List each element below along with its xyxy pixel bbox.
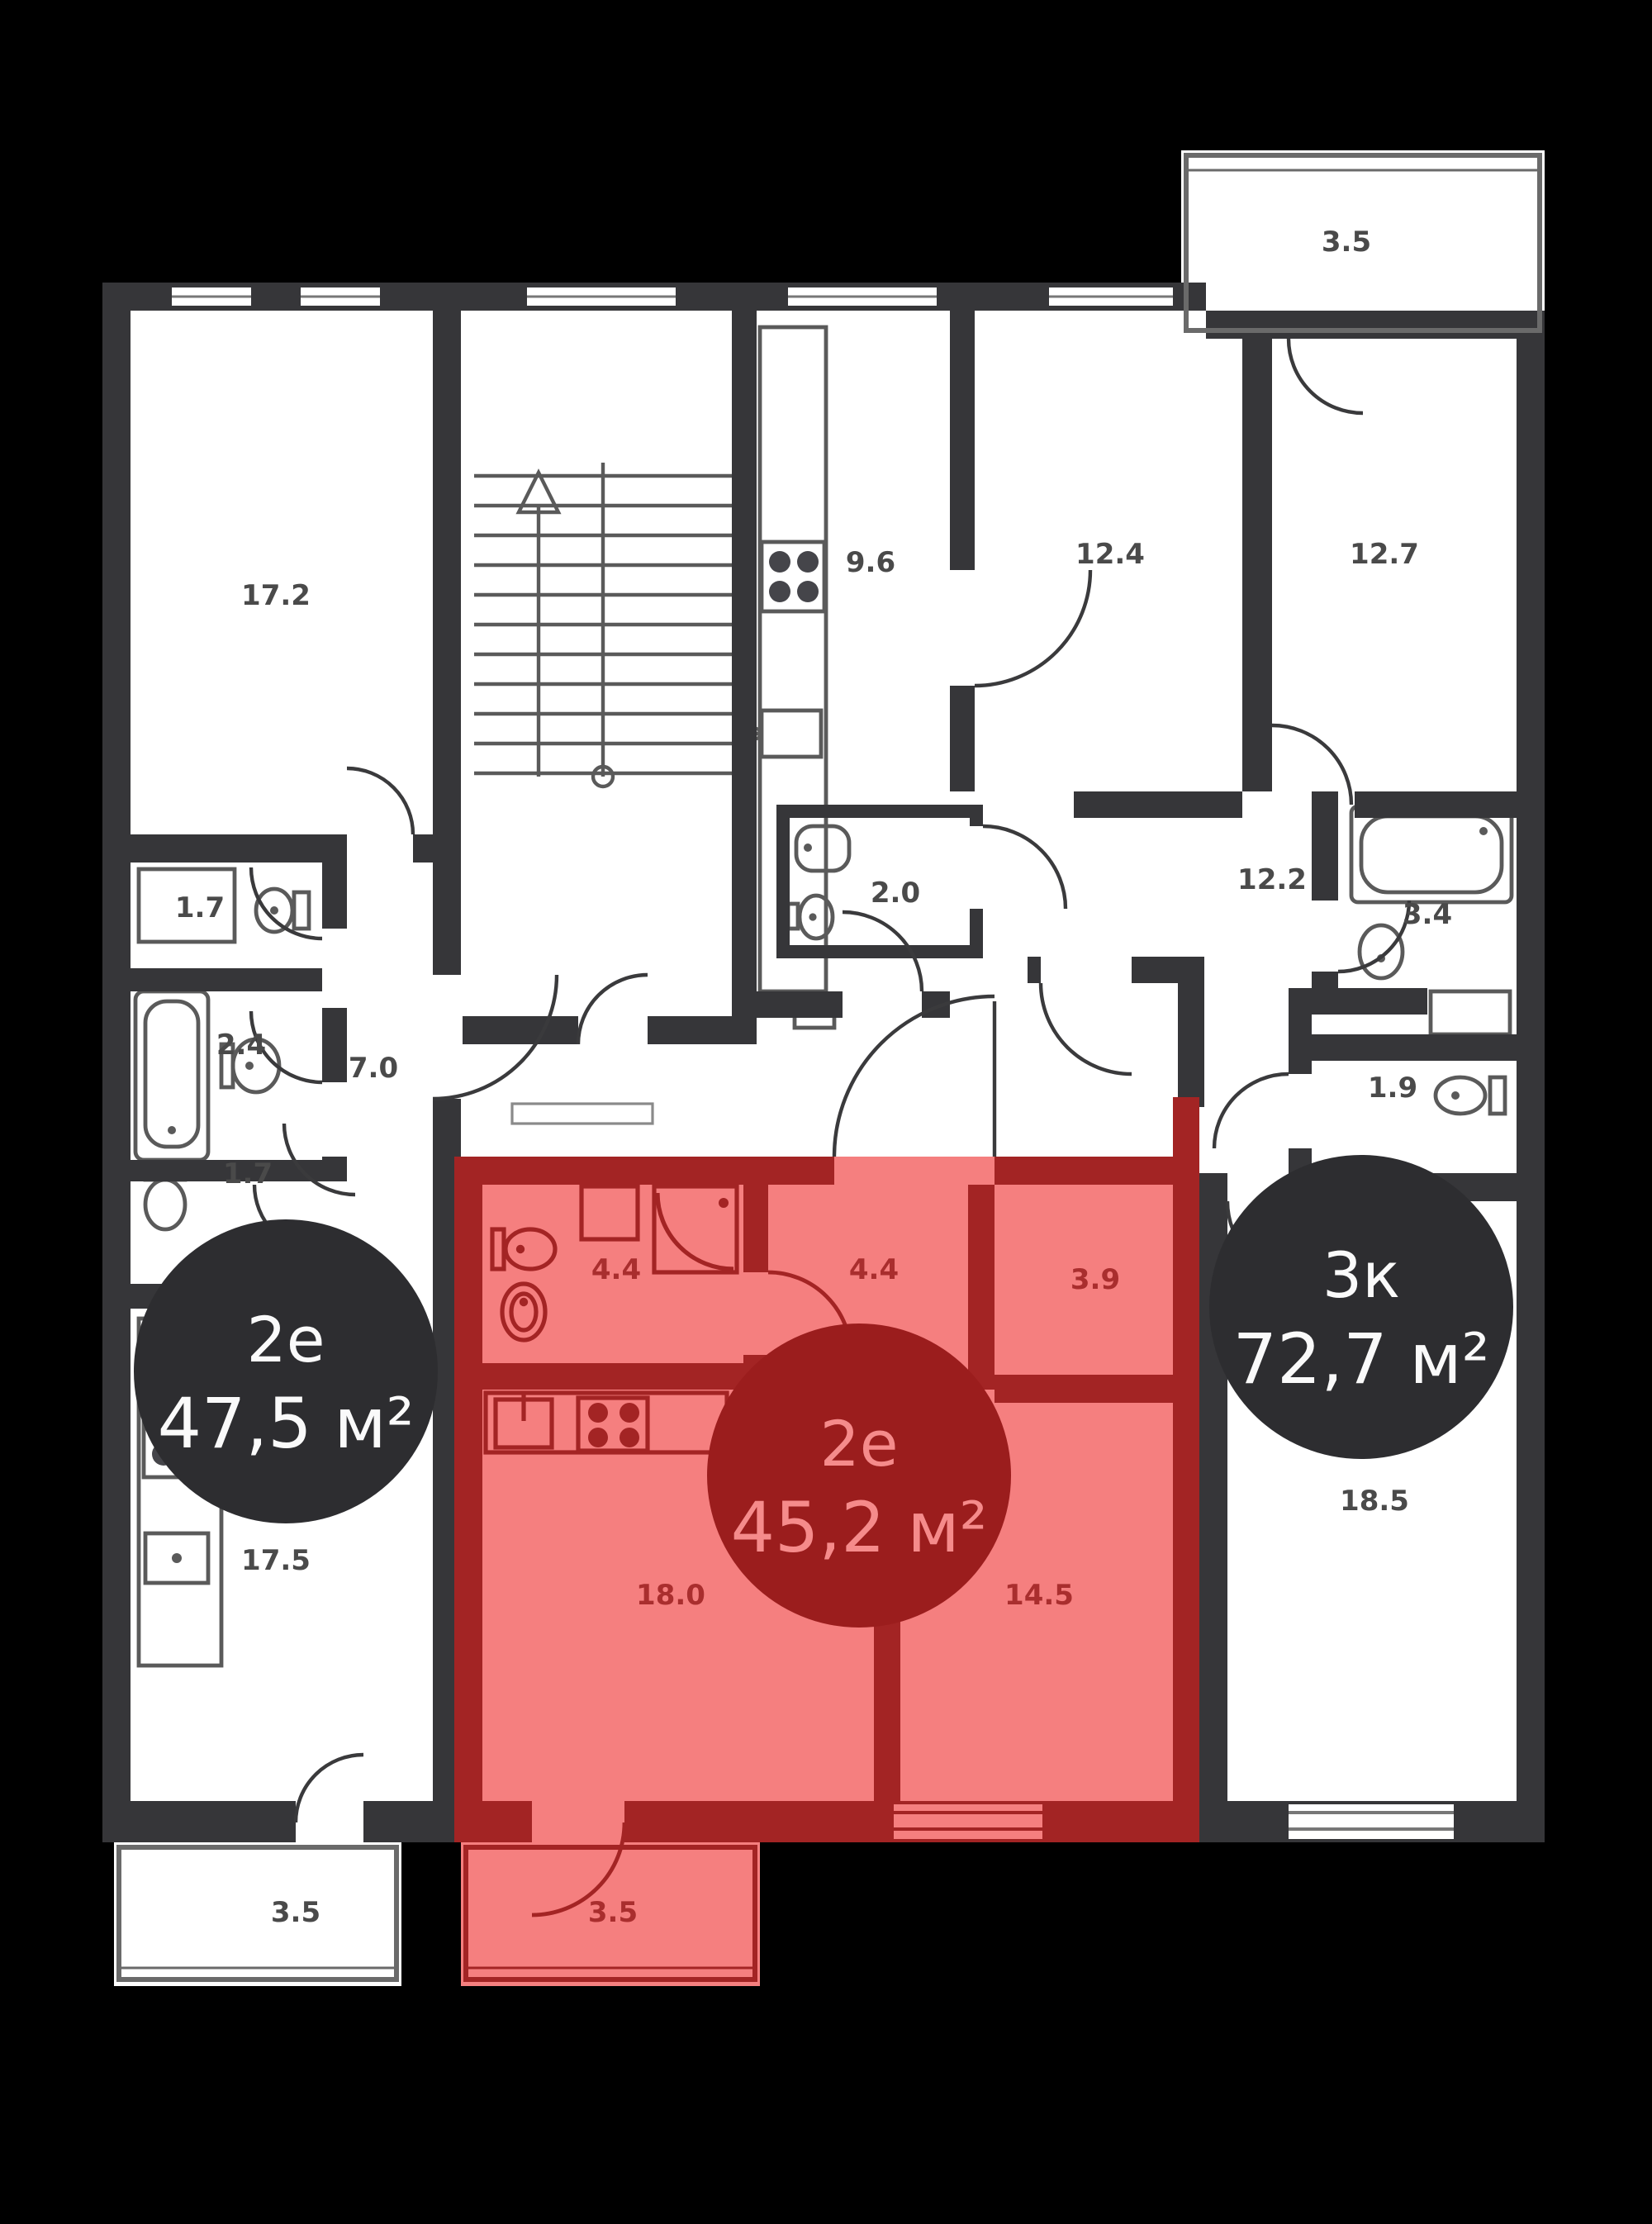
room-area-label: 3.9: [1070, 1263, 1120, 1296]
apartment-area: 45,2 м²: [731, 1487, 988, 1568]
floor-plan-page: 17.2 1.7 2.4 7.0 1.7 17.5 3.5 4.4 4.4 3.…: [0, 0, 1652, 2224]
apartment-type: 2е: [246, 1303, 325, 1376]
apartment-area: 72,7 м²: [1233, 1319, 1490, 1400]
window-icon: [1049, 288, 1173, 306]
room-area-label: 17.2: [241, 579, 311, 612]
room-area-label: 4.4: [849, 1253, 899, 1286]
room-area-label: 2.4: [216, 1029, 266, 1062]
room-area-label: 1.7: [223, 1157, 273, 1190]
room-area-label: 3.5: [271, 1896, 320, 1929]
apartment-type: 3к: [1322, 1238, 1400, 1312]
floor-plan: 17.2 1.7 2.4 7.0 1.7 17.5 3.5 4.4 4.4 3.…: [0, 0, 1652, 2224]
apartment-area: 47,5 м²: [158, 1383, 415, 1464]
room-area-label: 12.4: [1075, 538, 1145, 571]
apartment-badge-2e-452[interactable]: 2е 45,2 м²: [707, 1323, 1011, 1628]
room-area-label: 3.4: [1403, 898, 1452, 931]
room-area-label: 12.2: [1237, 863, 1307, 896]
room-area-label: 9.6: [846, 546, 895, 579]
apartment-badge-2e-475[interactable]: 2е 47,5 м²: [134, 1219, 438, 1523]
apartment-type: 2е: [819, 1407, 898, 1480]
window-icon: [788, 288, 937, 306]
apartment-badge-3k-727[interactable]: 3к 72,7 м²: [1209, 1155, 1513, 1459]
room-area-label: 3.5: [1322, 226, 1371, 259]
room-area-label: 18.5: [1340, 1485, 1409, 1518]
room-area-label: 17.5: [241, 1544, 311, 1577]
window-icon: [1289, 1804, 1454, 1839]
room-area-label: 14.5: [1004, 1579, 1074, 1612]
window-icon: [527, 288, 676, 306]
room-area-label: 2.0: [871, 877, 920, 910]
room-area-label: 4.4: [591, 1253, 641, 1286]
room-area-label: 12.7: [1350, 538, 1419, 571]
room-area-label: 1.9: [1368, 1072, 1417, 1105]
room-area-label: 1.7: [175, 891, 225, 924]
room-area-label: 7.0: [349, 1052, 398, 1085]
room-area-label: 3.5: [588, 1896, 638, 1929]
window-icon: [172, 288, 251, 306]
room-area-label: 18.0: [636, 1579, 705, 1612]
window-icon: [301, 288, 380, 306]
